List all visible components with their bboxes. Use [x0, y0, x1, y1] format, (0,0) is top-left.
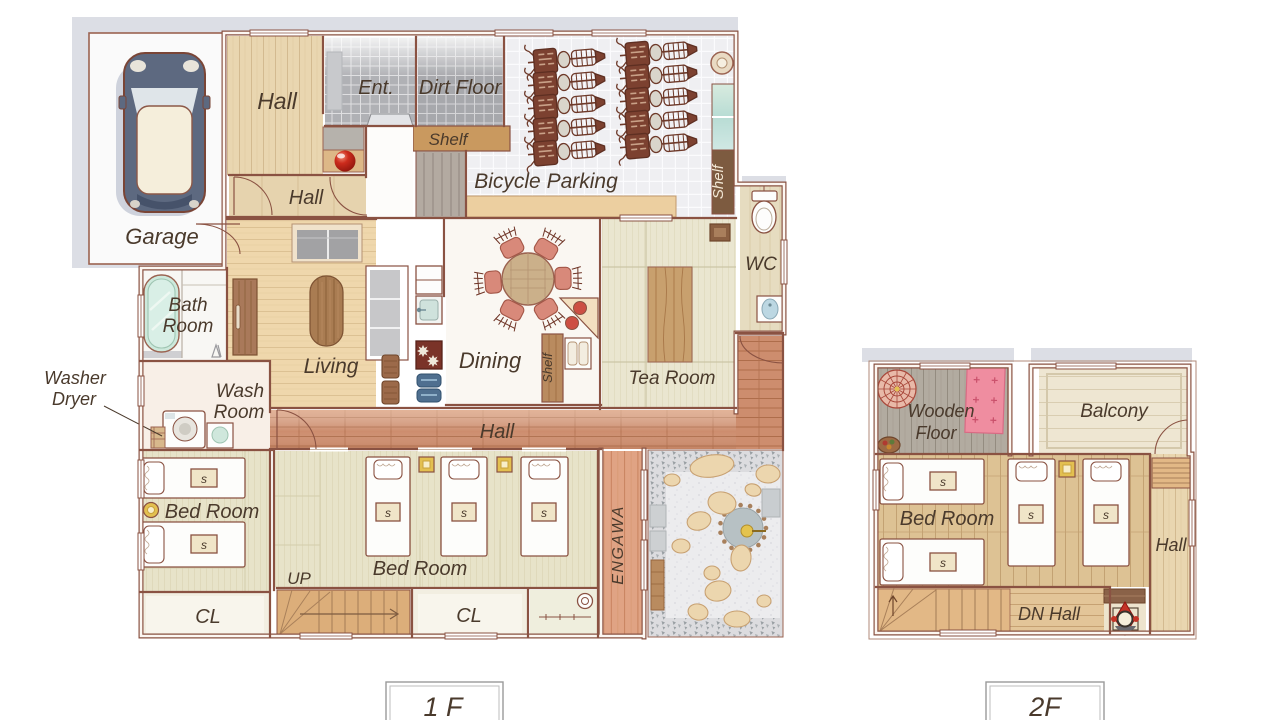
svg-text:Hall: Hall: [480, 421, 515, 443]
svg-text:Hall: Hall: [289, 187, 324, 209]
svg-text:1 F: 1 F: [423, 692, 464, 720]
svg-text:DN Hall: DN Hall: [1018, 604, 1081, 624]
svg-text:Dirt Floor: Dirt Floor: [419, 77, 503, 99]
svg-text:Room: Room: [163, 316, 214, 337]
svg-text:s: s: [201, 472, 207, 486]
svg-text:2F: 2F: [1028, 692, 1062, 720]
svg-text:s: s: [1103, 508, 1109, 522]
svg-text:Floor: Floor: [915, 423, 957, 443]
svg-text:s: s: [940, 475, 946, 489]
svg-text:Shelf: Shelf: [429, 130, 470, 149]
svg-text:Room: Room: [214, 402, 265, 423]
svg-text:UP: UP: [287, 569, 311, 588]
svg-text:Bed Room: Bed Room: [373, 558, 468, 580]
svg-text:Bicycle Parking: Bicycle Parking: [474, 170, 618, 193]
svg-text:Wash: Wash: [216, 381, 264, 402]
svg-text:CL: CL: [456, 605, 482, 627]
svg-text:CL: CL: [195, 606, 221, 628]
svg-text:Hall: Hall: [1155, 535, 1187, 555]
svg-text:Bed Room: Bed Room: [900, 508, 995, 530]
svg-text:Dryer: Dryer: [52, 389, 97, 409]
svg-text:Bath: Bath: [168, 295, 207, 316]
svg-text:Hall: Hall: [257, 88, 298, 114]
svg-text:s: s: [940, 556, 946, 570]
svg-text:s: s: [385, 506, 391, 520]
svg-text:Living: Living: [304, 355, 359, 378]
svg-text:Shelf: Shelf: [710, 163, 727, 199]
svg-text:Shelf: Shelf: [540, 352, 555, 383]
svg-text:ENGAWA: ENGAWA: [610, 505, 627, 585]
svg-text:Dining: Dining: [459, 348, 522, 373]
svg-text:Washer: Washer: [44, 368, 107, 388]
svg-text:Bed Room: Bed Room: [165, 501, 260, 523]
svg-text:Ent.: Ent.: [358, 77, 394, 99]
svg-text:Wooden: Wooden: [907, 401, 974, 421]
svg-text:s: s: [541, 506, 547, 520]
svg-text:s: s: [461, 506, 467, 520]
svg-text:Tea Room: Tea Room: [629, 368, 716, 389]
svg-text:WC: WC: [745, 254, 777, 275]
svg-text:Balcony: Balcony: [1080, 401, 1149, 422]
svg-text:Garage: Garage: [125, 224, 198, 249]
svg-text:s: s: [201, 538, 207, 552]
svg-text:s: s: [1028, 508, 1034, 522]
